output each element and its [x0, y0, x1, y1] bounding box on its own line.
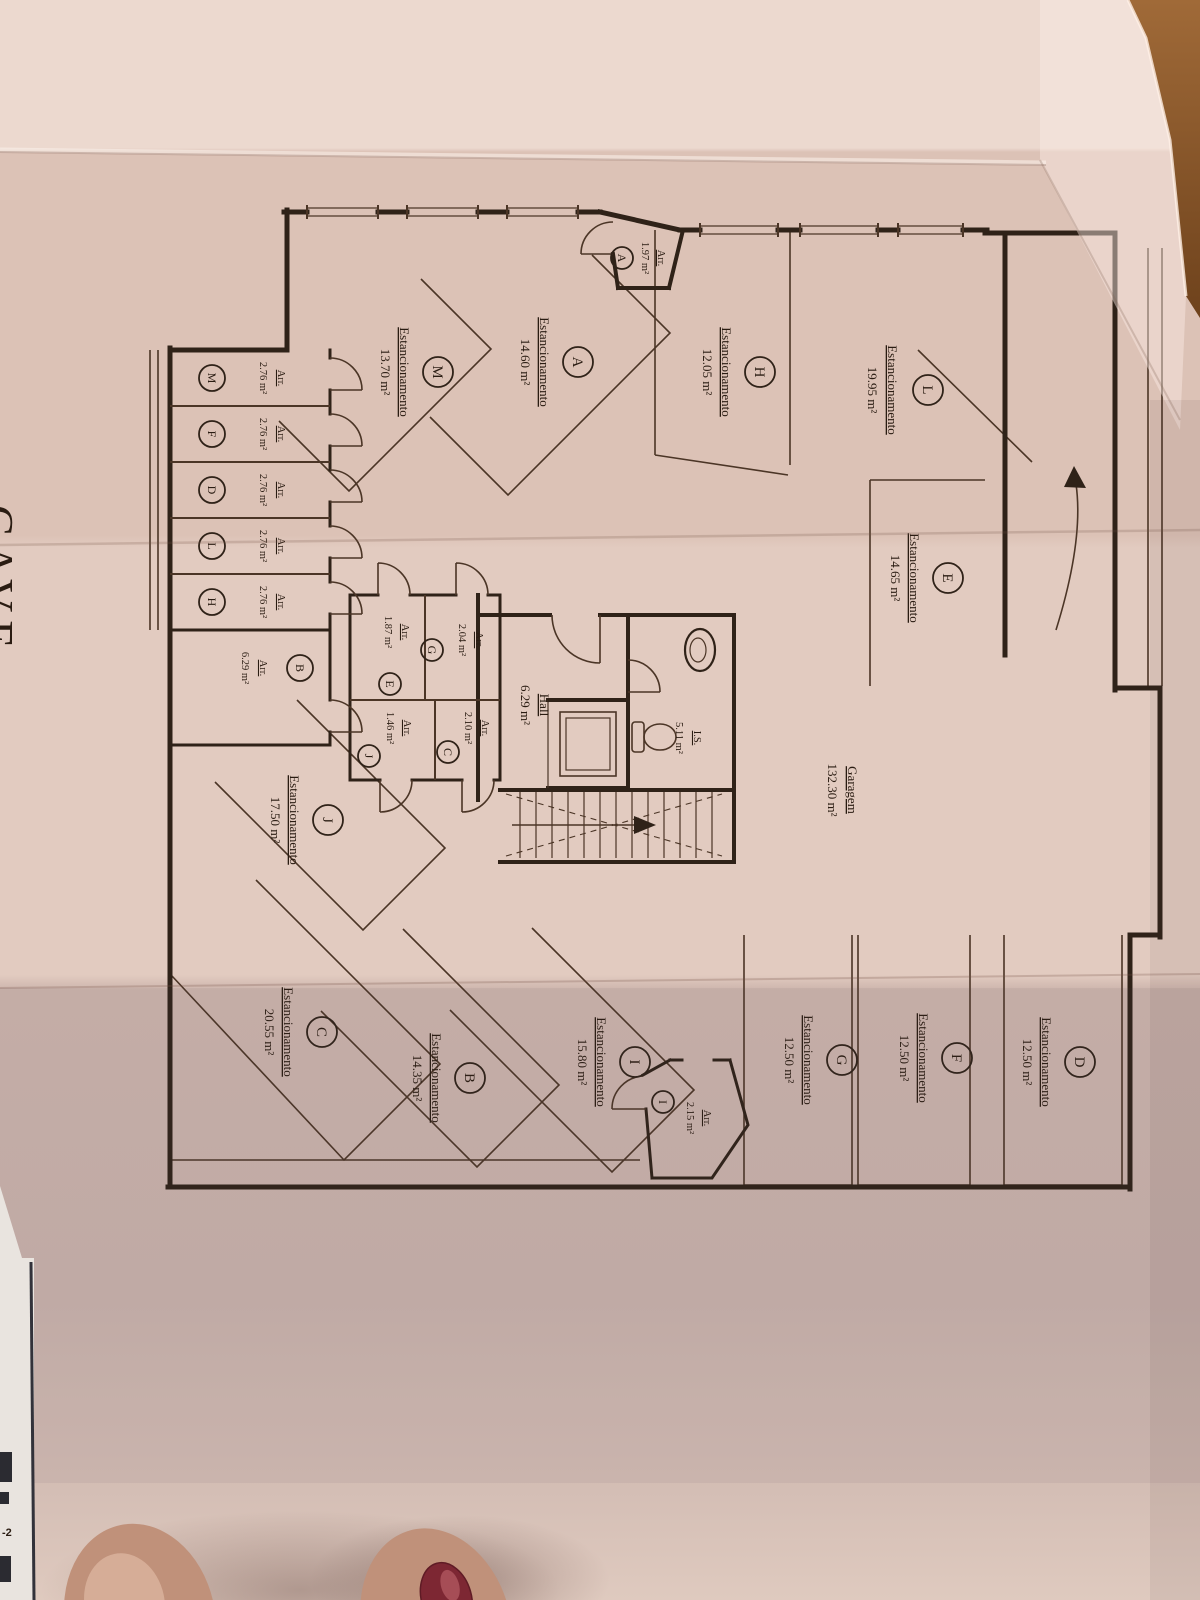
svg-text:19.95 m²: 19.95 m²: [865, 367, 880, 414]
stair-direction-arrow: [634, 816, 656, 834]
svg-text:B: B: [293, 664, 307, 672]
svg-text:Arr.: Arr.: [275, 538, 286, 555]
svg-text:E: E: [383, 680, 397, 687]
storage-label-L: Arr.2.76 m² L: [199, 530, 286, 562]
svg-text:5.11 m²: 5.11 m²: [673, 722, 684, 754]
svg-text:6.29 m²: 6.29 m²: [518, 685, 533, 725]
floor-plan-svg: L Estancionamento19.95 m² H Estancioname…: [0, 0, 1200, 1600]
svg-text:Estancionamento: Estancionamento: [397, 327, 412, 417]
parking-label-F: F Estancionamento12.50 m²: [897, 1013, 972, 1103]
svg-text:J: J: [319, 817, 335, 823]
svg-text:J: J: [362, 754, 376, 759]
svg-text:2.76 m²: 2.76 m²: [257, 474, 268, 506]
svg-text:15.80 m²: 15.80 m²: [575, 1039, 590, 1086]
parking-label-B: B Estancionamento14.35 m²: [410, 1033, 485, 1123]
svg-text:2.76 m²: 2.76 m²: [257, 586, 268, 618]
svg-text:Estancionamento: Estancionamento: [916, 1013, 931, 1103]
svg-text:L: L: [919, 385, 935, 394]
svg-text:Estancionamento: Estancionamento: [1039, 1017, 1054, 1107]
svg-text:G: G: [833, 1055, 849, 1066]
svg-text:C: C: [313, 1027, 329, 1037]
svg-text:Estancionamento: Estancionamento: [281, 987, 296, 1077]
svg-text:2.10 m²: 2.10 m²: [462, 712, 473, 744]
svg-text:Arr.: Arr.: [275, 482, 286, 499]
svg-text:H: H: [205, 598, 219, 607]
svg-text:2.76 m²: 2.76 m²: [257, 362, 268, 394]
svg-text:6.29 m²: 6.29 m²: [239, 652, 250, 684]
svg-text:20.55 m²: 20.55 m²: [262, 1009, 277, 1056]
svg-text:G: G: [425, 646, 439, 655]
garage-label: Garagem132.30 m²: [825, 763, 860, 816]
elevator: [548, 700, 616, 788]
svg-text:14.60 m²: 14.60 m²: [518, 339, 533, 386]
parking-label-E: E Estancionamento14.65 m²: [888, 533, 963, 623]
svg-text:Estancionamento: Estancionamento: [287, 775, 302, 865]
svg-text:12.50 m²: 12.50 m²: [1020, 1039, 1035, 1086]
parking-label-M: M Estancionamento13.70 m²: [378, 327, 453, 417]
svg-text:F: F: [948, 1054, 964, 1062]
svg-text:1.97 m²: 1.97 m²: [639, 242, 650, 274]
svg-text:L: L: [205, 542, 219, 549]
svg-text:M: M: [429, 365, 445, 378]
hall-label: Hall6.29 m²: [518, 685, 552, 725]
plan-sheet: L Estancionamento19.95 m² H Estancioname…: [0, 0, 1200, 1600]
parking-label-H: H Estancionamento12.05 m²: [700, 327, 775, 417]
svg-text:Estancionamento: Estancionamento: [801, 1015, 816, 1105]
svg-text:14.35 m²: 14.35 m²: [410, 1055, 425, 1102]
svg-text:Arr.: Arr.: [655, 250, 666, 267]
svg-text:A: A: [569, 357, 585, 368]
svg-text:I.S.: I.S.: [691, 731, 702, 746]
storage-label-G: Arr.2.04 m² G: [421, 624, 484, 661]
svg-text:2.76 m²: 2.76 m²: [257, 418, 268, 450]
parking-label-C: C Estancionamento20.55 m²: [262, 987, 337, 1077]
svg-text:D: D: [205, 486, 219, 495]
svg-text:2.76 m²: 2.76 m²: [257, 530, 268, 562]
svg-text:Arr.: Arr.: [275, 426, 286, 443]
storage-label-E: Arr.1.87 m² E: [379, 616, 410, 695]
svg-text:Arr.: Arr.: [473, 632, 484, 649]
svg-text:Estancionamento: Estancionamento: [594, 1017, 609, 1107]
svg-text:Estancionamento: Estancionamento: [885, 345, 900, 435]
outer-walls: [168, 210, 1160, 1189]
storage-label-H: Arr.2.76 m² H: [199, 586, 286, 618]
svg-text:2.04 m²: 2.04 m²: [456, 624, 467, 656]
parking-division-lines: [150, 230, 1162, 1185]
parking-label-I: I Estancionamento15.80 m²: [575, 1017, 650, 1107]
svg-text:1.46 m²: 1.46 m²: [384, 712, 395, 744]
svg-text:Arr.: Arr.: [701, 1110, 712, 1127]
svg-text:A: A: [615, 254, 629, 263]
svg-text:Estancionamento: Estancionamento: [429, 1033, 444, 1123]
svg-text:132.30 m²: 132.30 m²: [825, 763, 840, 816]
photo-of-floor-plan: L Estancionamento19.95 m² H Estancioname…: [0, 0, 1200, 1600]
svg-text:17.50 m²: 17.50 m²: [268, 797, 283, 844]
sheet-title: CAVE: [0, 505, 23, 656]
storage-label-A: Arr.1.97 m² A: [611, 242, 666, 274]
storage-label-B: B Arr.6.29 m²: [239, 652, 313, 684]
parking-label-J: J Estancionamento17.50 m²: [268, 775, 343, 865]
parking-label-D: D Estancionamento12.50 m²: [1020, 1017, 1095, 1107]
svg-text:Estancionamento: Estancionamento: [907, 533, 922, 623]
svg-text:Garagem: Garagem: [845, 766, 860, 814]
svg-text:2.15 m²: 2.15 m²: [684, 1102, 695, 1134]
svg-text:F: F: [205, 431, 219, 438]
svg-text:Hall: Hall: [537, 694, 552, 717]
svg-text:12.05 m²: 12.05 m²: [700, 349, 715, 396]
svg-text:Estancionamento: Estancionamento: [719, 327, 734, 417]
storage-label-D: Arr.2.76 m² D: [199, 474, 286, 506]
staircase: [506, 792, 722, 858]
svg-text:C: C: [441, 748, 455, 756]
wc-label: I.S.5.11 m²: [673, 722, 702, 754]
parking-label-A: A Estancionamento14.60 m²: [518, 317, 593, 407]
svg-text:E: E: [939, 573, 955, 582]
storage-label-F: Arr.2.76 m² F: [199, 418, 286, 450]
svg-text:M: M: [205, 373, 219, 384]
svg-text:D: D: [1071, 1057, 1087, 1068]
svg-text:Arr.: Arr.: [275, 594, 286, 611]
storage-label-C: Arr.2.10 m² C: [437, 712, 490, 763]
parking-label-L: L Estancionamento19.95 m²: [865, 345, 943, 435]
svg-text:Arr.: Arr.: [399, 624, 410, 641]
svg-text:B: B: [461, 1073, 477, 1083]
svg-text:1.87 m²: 1.87 m²: [382, 616, 393, 648]
svg-text:Arr.: Arr.: [479, 720, 490, 737]
svg-text:14.65 m²: 14.65 m²: [888, 555, 903, 602]
svg-text:13.70 m²: 13.70 m²: [378, 349, 393, 396]
svg-text:12.50 m²: 12.50 m²: [782, 1037, 797, 1084]
toilet-icon: [644, 724, 676, 750]
svg-text:Arr.: Arr.: [401, 720, 412, 737]
storage-label-I: Arr.2.15 m² I: [652, 1091, 712, 1134]
svg-text:Arr.: Arr.: [275, 370, 286, 387]
svg-text:I: I: [656, 1100, 670, 1104]
labels: L Estancionamento19.95 m² H Estancioname…: [0, 242, 1095, 1134]
svg-text:Arr.: Arr.: [257, 660, 268, 677]
svg-text:12.50 m²: 12.50 m²: [897, 1035, 912, 1082]
ramp-arrow: [1056, 466, 1086, 630]
parking-label-G: G Estancionamento12.50 m²: [782, 1015, 857, 1105]
storage-label-M: Arr.2.76 m² M: [199, 362, 286, 394]
svg-text:H: H: [751, 367, 767, 378]
svg-text:I: I: [626, 1060, 642, 1065]
svg-text:Estancionamento: Estancionamento: [537, 317, 552, 407]
storage-label-J: Arr.1.46 m² J: [358, 712, 412, 767]
